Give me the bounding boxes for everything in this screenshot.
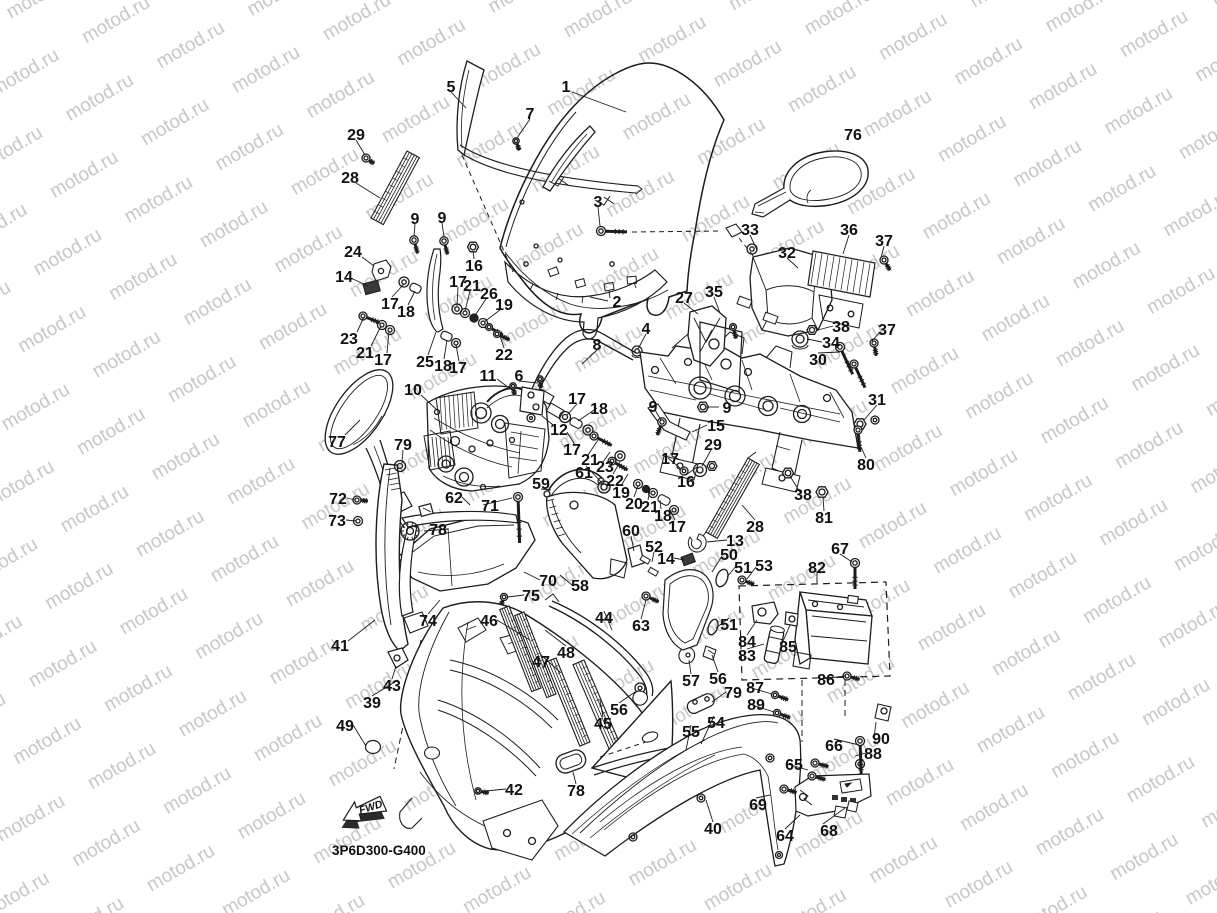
svg-text:36: 36: [840, 222, 858, 239]
svg-text:17: 17: [563, 442, 581, 459]
svg-text:22: 22: [495, 347, 513, 364]
svg-text:64: 64: [776, 828, 794, 845]
svg-text:78: 78: [429, 522, 447, 539]
svg-text:3: 3: [594, 194, 603, 211]
svg-text:41: 41: [331, 638, 349, 655]
svg-text:54: 54: [707, 715, 725, 732]
svg-text:31: 31: [868, 392, 886, 409]
svg-text:4: 4: [642, 321, 651, 338]
svg-text:75: 75: [522, 588, 540, 605]
svg-text:7: 7: [526, 106, 535, 123]
svg-text:89: 89: [747, 697, 765, 714]
svg-text:21: 21: [356, 345, 374, 362]
svg-text:58: 58: [571, 578, 589, 595]
svg-text:87: 87: [746, 680, 764, 697]
svg-text:90: 90: [872, 731, 890, 748]
svg-text:17: 17: [374, 352, 392, 369]
svg-text:28: 28: [341, 170, 359, 187]
svg-text:74: 74: [419, 613, 437, 630]
svg-text:37: 37: [875, 233, 893, 250]
svg-text:67: 67: [831, 541, 849, 558]
svg-text:19: 19: [495, 297, 513, 314]
svg-text:16: 16: [677, 474, 695, 491]
svg-text:65: 65: [785, 757, 803, 774]
svg-text:55: 55: [682, 724, 700, 741]
svg-text:42: 42: [505, 782, 523, 799]
svg-text:40: 40: [704, 821, 722, 838]
svg-text:70: 70: [539, 573, 557, 590]
svg-text:61: 61: [575, 465, 593, 482]
svg-text:71: 71: [481, 498, 499, 515]
svg-text:27: 27: [675, 290, 693, 307]
svg-text:56: 56: [610, 702, 628, 719]
svg-text:34: 34: [822, 335, 840, 352]
svg-text:77: 77: [328, 434, 346, 451]
svg-text:72: 72: [329, 491, 347, 508]
svg-text:83: 83: [738, 648, 756, 665]
svg-text:59: 59: [532, 476, 550, 493]
svg-text:49: 49: [336, 718, 354, 735]
svg-text:62: 62: [445, 490, 463, 507]
svg-text:81: 81: [815, 510, 833, 527]
svg-text:21: 21: [463, 278, 481, 295]
svg-text:9: 9: [723, 400, 732, 417]
svg-text:17: 17: [568, 391, 586, 408]
svg-text:29: 29: [704, 437, 722, 454]
svg-text:80: 80: [857, 457, 875, 474]
svg-text:12: 12: [550, 422, 568, 439]
svg-text:78: 78: [567, 783, 585, 800]
svg-text:79: 79: [724, 685, 742, 702]
svg-text:73: 73: [328, 513, 346, 530]
svg-text:6: 6: [515, 368, 524, 385]
svg-text:2: 2: [613, 294, 622, 311]
svg-text:66: 66: [825, 738, 843, 755]
svg-text:9: 9: [438, 210, 447, 227]
svg-text:14: 14: [335, 269, 353, 286]
svg-text:38: 38: [832, 319, 850, 336]
svg-text:76: 76: [844, 127, 862, 144]
svg-text:48: 48: [557, 645, 575, 662]
svg-text:85: 85: [779, 639, 797, 656]
svg-text:37: 37: [878, 322, 896, 339]
svg-text:15: 15: [707, 418, 725, 435]
svg-text:43: 43: [383, 678, 401, 695]
svg-text:17: 17: [449, 360, 467, 377]
svg-text:16: 16: [465, 258, 483, 275]
svg-text:79: 79: [394, 437, 412, 454]
svg-text:11: 11: [480, 368, 497, 385]
svg-text:57: 57: [682, 673, 700, 690]
svg-text:68: 68: [820, 823, 838, 840]
svg-text:47: 47: [532, 654, 550, 671]
svg-text:51: 51: [734, 560, 752, 577]
svg-text:3P6D300-G400: 3P6D300-G400: [332, 843, 426, 858]
svg-text:69: 69: [749, 797, 767, 814]
svg-text:8: 8: [593, 337, 602, 354]
svg-text:88: 88: [864, 746, 882, 763]
svg-text:30: 30: [809, 352, 827, 369]
svg-text:39: 39: [363, 695, 381, 712]
svg-text:14: 14: [657, 551, 675, 568]
svg-text:17: 17: [661, 451, 679, 468]
svg-text:86: 86: [817, 672, 835, 689]
svg-text:38: 38: [794, 487, 812, 504]
svg-text:51: 51: [720, 617, 738, 634]
svg-text:17: 17: [668, 519, 686, 536]
svg-text:45: 45: [594, 716, 612, 733]
svg-text:82: 82: [808, 560, 826, 577]
svg-text:1: 1: [562, 79, 571, 96]
svg-text:60: 60: [622, 523, 640, 540]
svg-text:18: 18: [397, 304, 415, 321]
svg-text:25: 25: [416, 354, 434, 371]
svg-text:10: 10: [404, 382, 422, 399]
svg-text:9: 9: [411, 211, 420, 228]
svg-text:9: 9: [649, 399, 658, 416]
svg-text:29: 29: [347, 127, 365, 144]
svg-text:24: 24: [344, 244, 362, 261]
svg-text:28: 28: [746, 519, 764, 536]
svg-text:53: 53: [755, 558, 773, 575]
svg-text:18: 18: [590, 401, 608, 418]
svg-text:46: 46: [480, 613, 498, 630]
svg-text:32: 32: [778, 245, 796, 262]
svg-text:33: 33: [741, 222, 759, 239]
svg-text:63: 63: [632, 618, 650, 635]
svg-text:35: 35: [705, 284, 723, 301]
svg-text:44: 44: [595, 610, 613, 627]
svg-text:5: 5: [447, 79, 456, 96]
